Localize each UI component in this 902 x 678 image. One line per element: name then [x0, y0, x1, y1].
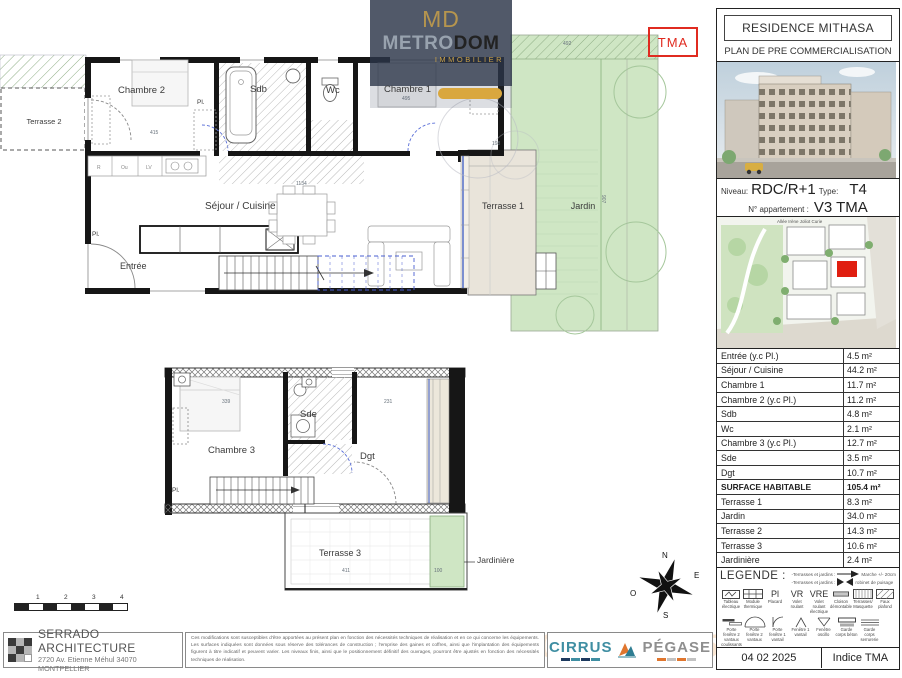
room-label-sdb: Sdb — [250, 84, 267, 95]
disclaimer-block: Ces modifications sont susceptibles d'êt… — [185, 632, 545, 668]
legend-item: Tableau électrique — [720, 588, 742, 614]
kitchen-units: R Ou LV — [88, 156, 206, 176]
table-row: Sdb4.8 m² — [717, 407, 899, 422]
apartment-info: Niveau: RDC/R+1 Type: T4 N° appartement … — [717, 179, 899, 217]
legend-item: Garde corps béton — [835, 616, 858, 647]
svg-text:Ou: Ou — [121, 165, 128, 171]
building-photo — [717, 62, 899, 179]
room-label-terrasse3: Terrasse 3 — [300, 548, 380, 558]
metrodom-tagline: IMMOBILIER — [370, 55, 512, 64]
floor-plan-drawing: R Ou LV — [0, 0, 715, 678]
step-arrow-icon — [837, 570, 859, 578]
legend-item: VR Volet roulant — [786, 588, 808, 614]
placard-code: Pl — [771, 589, 779, 599]
legend-item: Porte fenêtre 2 vantaux coulissants — [720, 616, 743, 647]
plan-date: 04 02 2025 — [717, 648, 822, 668]
legend-item: Garde corps serrurerie — [858, 616, 881, 647]
room-label-chambre3: Chambre 3 — [208, 445, 255, 456]
niveau-label: Niveau: — [721, 187, 748, 196]
room-label-chambre1: Chambre 1 — [384, 84, 431, 95]
metrodom-wordmark: METRODOM — [370, 33, 512, 55]
tma-tag: TMA — [648, 27, 698, 57]
metrodom-banner — [438, 88, 502, 99]
dim-231: 231 — [384, 399, 392, 405]
hall-tiles — [219, 156, 364, 184]
compass-o: O — [630, 589, 636, 598]
legend-row-1: Tableau électrique Module thermique Pl P… — [720, 588, 896, 614]
room-label-terrasse2: Terrasse 2 — [2, 117, 86, 126]
table-row: Séjour / Cuisine44.2 m² — [717, 364, 899, 379]
compass-rose: N E O S — [626, 548, 706, 620]
areas-table: Entrée (y.c Pl.)4.5 m² Séjour / Cuisine4… — [717, 349, 899, 567]
legend-item: Fenêtre 1 vantail — [789, 616, 812, 647]
diagonal-hatch-icon — [876, 589, 894, 599]
room-label-sejour: Séjour / Cuisine — [205, 201, 276, 212]
legend-item: VRE Volet roulant électrique — [808, 588, 830, 614]
architect-address: 2720 Av. Etienne Méhul 34070 MONTPELLIER — [38, 655, 182, 673]
scale-number: 3 — [92, 594, 96, 601]
legend-title: LEGENDE : — [720, 570, 786, 586]
table-row: Terrasse 18.3 m² — [717, 495, 899, 510]
dim-198: 198 — [492, 141, 500, 147]
vre-code: VRE — [810, 589, 829, 599]
room-label-placard-c: Pl. — [172, 487, 180, 494]
apartment-value: V3 TMA — [814, 199, 868, 216]
room-label-entree: Entrée — [120, 261, 147, 271]
electrical-panel-icon — [722, 590, 740, 599]
scale-bar: 1 2 3 4 — [14, 594, 134, 614]
niveau-value: RDC/R+1 — [751, 181, 816, 198]
pegase-logo: PÉGASE — [642, 639, 711, 661]
scale-number: 2 — [64, 594, 68, 601]
dim-411: 411 — [342, 568, 350, 574]
metal-guardrail-icon — [861, 618, 879, 626]
table-row: Chambre 3 (y.c Pl.)12.7 m² — [717, 437, 899, 452]
legend-note1-desc: Marche +/- 20cm — [861, 572, 896, 577]
room-label-placard-b: Pl. — [92, 231, 100, 238]
promoter-logos: CIRRUS PÉGASE — [547, 632, 713, 668]
dining-table — [269, 186, 335, 244]
svg-text:LV: LV — [146, 165, 152, 171]
compass-s: S — [663, 611, 668, 620]
legend-item: Porte fenêtre 2 vantaux — [743, 616, 766, 647]
legend-note2-label: -Terrasses et jardins : — [791, 580, 835, 585]
project-title: RESIDENCE MITHASA — [724, 15, 892, 41]
terrace-hatch-icon — [853, 589, 873, 599]
date-indice-row: 04 02 2025 Indice TMA — [717, 647, 899, 668]
door-arc-dgt — [354, 462, 396, 504]
vr-code: VR — [791, 589, 804, 599]
scale-number: 4 — [120, 594, 124, 601]
type-value: T4 — [849, 181, 867, 198]
site-map: Allée Irène Joliot Curie — [717, 217, 899, 349]
metrodom-monogram: MD — [370, 6, 512, 33]
plan-subtitle: PLAN DE PRE COMMERCIALISATION — [717, 41, 899, 62]
compass-n: N — [662, 551, 668, 560]
dim-100: 100 — [434, 568, 442, 574]
legend-section: LEGENDE : -Terrasses et jardins : Marche… — [717, 567, 899, 647]
title-block-panel: RESIDENCE MITHASA PLAN DE PRE COMMERCIAL… — [716, 8, 900, 670]
legend-item: Terrasses/ Masquette — [852, 588, 874, 614]
legend-item: Faux plafond — [874, 588, 896, 614]
dim-339: 339 — [222, 399, 230, 405]
compass-e: E — [694, 571, 699, 580]
tap-valve-icon — [837, 578, 853, 586]
apartment-label: N° appartement : — [748, 205, 809, 214]
concrete-guardrail-icon — [838, 617, 856, 627]
shower-room-sde — [288, 377, 352, 474]
table-row: Terrasse 310.6 m² — [717, 539, 899, 554]
tma-tag-label: TMA — [658, 35, 688, 50]
table-row: Chambre 111.7 m² — [717, 378, 899, 393]
room-label-wc: Wc — [326, 85, 340, 96]
room-label-chambre2: Chambre 2 — [118, 85, 165, 96]
table-row-total: SURFACE HABITABLE105.4 m² — [717, 480, 899, 495]
planter-jardiniere — [430, 516, 464, 587]
table-row: Sde3.5 m² — [717, 451, 899, 466]
dim-415: 415 — [150, 130, 158, 136]
partition-icon — [833, 591, 849, 597]
serrado-logo-icon — [8, 638, 32, 662]
highlighted-unit — [837, 261, 857, 277]
scale-bar-segments — [14, 603, 128, 611]
table-row: Wc2.1 m² — [717, 422, 899, 437]
room-label-placard-a: Pl. — [197, 99, 205, 106]
pegase-horse-icon — [617, 641, 637, 659]
room-label-sde: Sde — [300, 409, 317, 420]
cirrus-logo: CIRRUS — [549, 639, 613, 661]
bathroom-sdb — [219, 63, 306, 151]
legend-item: Pl Placard — [764, 588, 786, 614]
table-row: Terrasse 214.3 m² — [717, 524, 899, 539]
architect-name: SERRADO ARCHITECTURE — [38, 627, 182, 655]
legend-item: Porte fenêtre 1 vantail — [766, 616, 789, 647]
legend-item: Cloison démontable — [830, 588, 852, 614]
table-row: Dgt10.7 m² — [717, 466, 899, 481]
pegase-logo-bars — [642, 658, 711, 661]
room-label-dgt: Dgt — [360, 451, 375, 462]
dim-492: 492 — [563, 41, 571, 47]
table-row: Jardin34.0 m² — [717, 510, 899, 525]
plan-indice: Indice TMA — [822, 648, 899, 668]
table-row: Chambre 2 (y.c Pl.)11.2 m² — [717, 393, 899, 408]
scale-number: 1 — [36, 594, 40, 601]
thermal-module-icon — [743, 589, 763, 599]
architect-block: SERRADO ARCHITECTURE 2720 Av. Etienne Mé… — [3, 632, 183, 668]
hedge-top-left — [0, 55, 86, 88]
type-label: Type: — [819, 187, 839, 196]
svg-text:R: R — [97, 165, 101, 171]
table-row: Jardinière2.4 m² — [717, 553, 899, 567]
dim-1134: 1134 — [296, 181, 307, 187]
cirrus-logo-bars — [549, 658, 613, 661]
legend-item: Module thermique — [742, 588, 764, 614]
metrodom-watermark: MD METRODOM IMMOBILIER — [370, 0, 512, 86]
stairs-r1 — [210, 477, 314, 504]
map-street-label: Allée Irène Joliot Curie — [777, 219, 823, 224]
room-label-jardiniere: Jardinière — [477, 555, 514, 565]
legend-note1-label: -Terrasses et jardins : — [791, 572, 835, 577]
stairs-rdc — [219, 256, 414, 290]
room-label-terrasse1: Terrasse 1 — [470, 201, 536, 211]
sliding-door-icon — [722, 618, 742, 626]
table-row: Entrée (y.c Pl.)4.5 m² — [717, 349, 899, 364]
plan-sheet: R Ou LV — [0, 0, 902, 678]
dim-907: 907 — [600, 195, 606, 203]
legend-item: Fenêtre oscillo — [812, 616, 835, 647]
legend-row-2: Porte fenêtre 2 vantaux coulissants Port… — [720, 616, 896, 647]
legend-note2-desc: robinet de puisage — [855, 580, 893, 585]
